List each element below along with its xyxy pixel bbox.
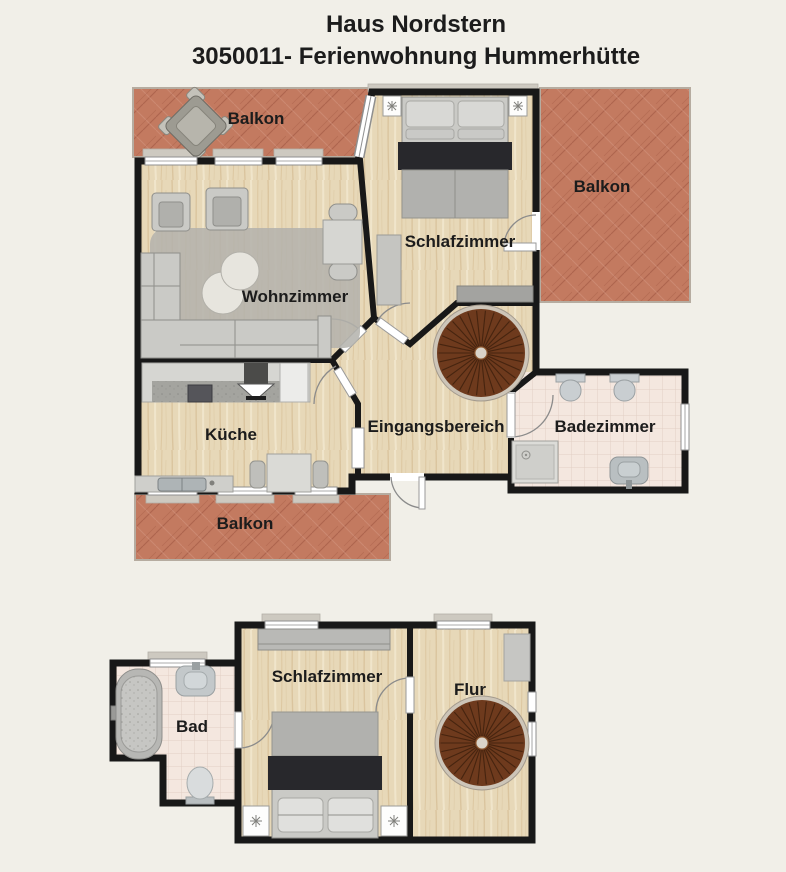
- flur-closet: [504, 634, 530, 681]
- shower: [512, 441, 558, 483]
- spiral-staircase-lower: [435, 696, 529, 790]
- label-badezimmer: Badezimmer: [554, 417, 655, 436]
- floor-plan-svg: Haus Nordstern 3050011- Ferienwohnung Hu…: [0, 0, 786, 872]
- label-balkon-top: Balkon: [228, 109, 285, 128]
- lower-floor: Bad Schlafzimmer Flur: [111, 614, 536, 840]
- washbasin: [610, 457, 648, 489]
- page-title-line1: Haus Nordstern: [326, 11, 506, 38]
- label-bad: Bad: [176, 717, 208, 736]
- spiral-staircase-upper: [433, 305, 529, 401]
- hall-cabinet-door: [352, 428, 364, 468]
- label-kueche: Küche: [205, 425, 257, 444]
- label-balkon-right: Balkon: [574, 177, 631, 196]
- toilet: [186, 767, 214, 804]
- dining-table: [323, 204, 362, 280]
- label-schlafzimmer-lower: Schlafzimmer: [272, 667, 383, 686]
- label-eingangsbereich: Eingangsbereich: [368, 417, 505, 436]
- page-title-line2: 3050011- Ferienwohnung Hummerhütte: [192, 43, 640, 70]
- fridge: [280, 363, 308, 402]
- sideboard: [457, 286, 533, 302]
- armchair: [152, 193, 190, 231]
- entrance-door: [390, 473, 425, 509]
- nightstand: [381, 806, 407, 836]
- stove: [188, 385, 212, 402]
- upper-floor: Balkon Balkon Balkon Wohnzimmer Schlafzi…: [133, 84, 690, 560]
- label-schlafzimmer-upper: Schlafzimmer: [405, 232, 516, 251]
- double-bed: [268, 712, 382, 838]
- bathtub: [111, 669, 162, 759]
- nightstand: [509, 96, 527, 116]
- nightstand: [243, 806, 269, 836]
- label-flur: Flur: [454, 680, 486, 699]
- floor-plan-page: Haus Nordstern 3050011- Ferienwohnung Hu…: [0, 0, 786, 872]
- bedroom-bench: [377, 235, 401, 305]
- wardrobe: [258, 629, 390, 650]
- washbasin: [176, 662, 215, 696]
- label-balkon-bottom: Balkon: [217, 514, 274, 533]
- nightstand: [383, 96, 401, 116]
- kitchen-sink: [135, 476, 233, 492]
- label-wohnzimmer: Wohnzimmer: [242, 287, 349, 306]
- double-bed: [398, 97, 512, 218]
- armchair: [206, 188, 248, 230]
